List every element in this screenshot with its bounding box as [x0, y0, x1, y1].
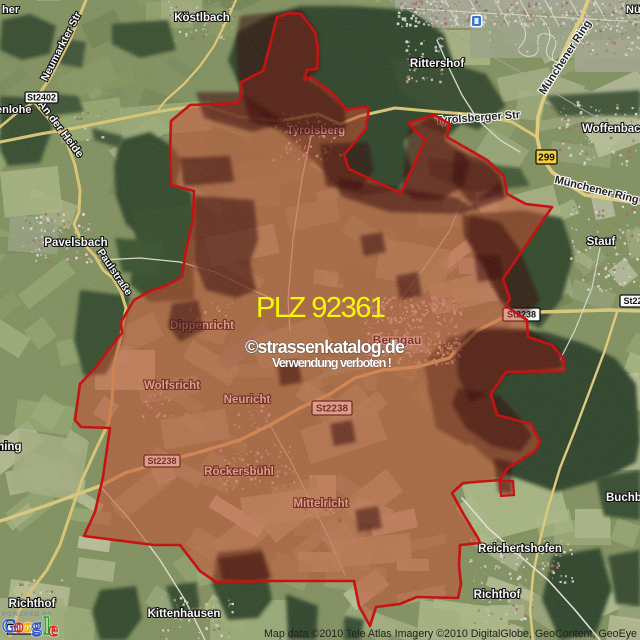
svg-text:©strassenkatalog.de: ©strassenkatalog.de — [245, 337, 405, 357]
svg-text:Map data ©2010 Tele Atlas Ima: Map data ©2010 Tele Atlas Imagery ©2010 … — [264, 628, 637, 640]
svg-text:g: g — [32, 616, 42, 637]
svg-text:e: e — [49, 617, 58, 640]
svg-text:PLZ 92361: PLZ 92361 — [256, 292, 386, 324]
svg-text:Verwendung verboten !: Verwendung verboten ! — [272, 355, 392, 370]
